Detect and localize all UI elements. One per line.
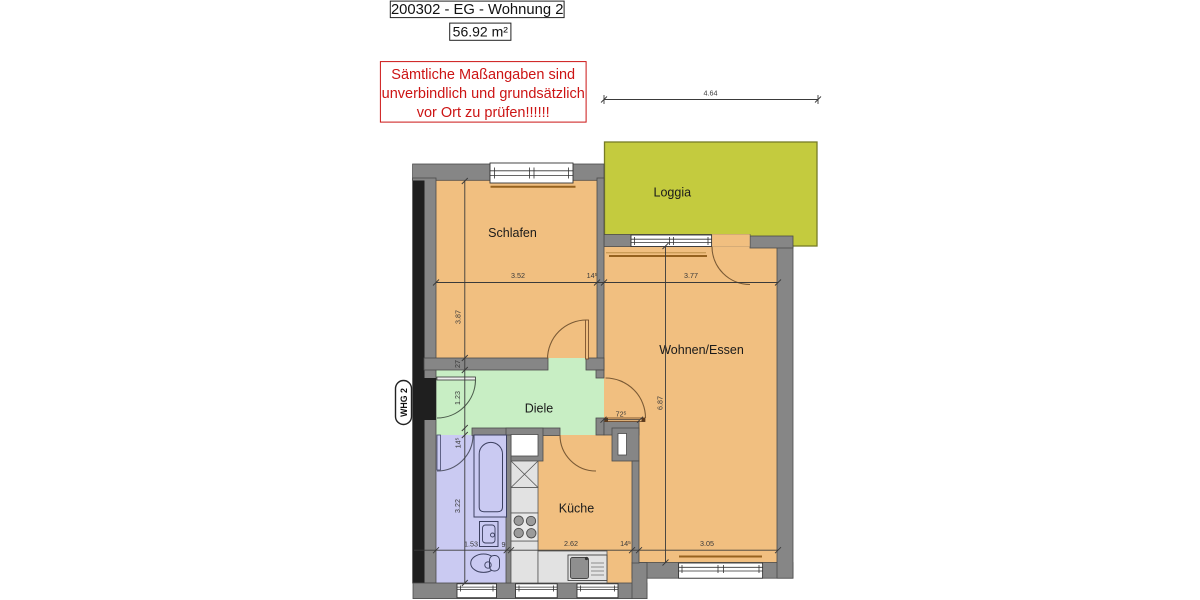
svg-text:unverbindlich und grundsätzlic: unverbindlich und grundsätzlich [382,86,585,102]
svg-text:4.64: 4.64 [704,89,718,98]
svg-text:Loggia: Loggia [654,186,692,200]
svg-text:Schlafen: Schlafen [488,226,537,240]
svg-text:3.22: 3.22 [453,499,462,513]
svg-text:2.62: 2.62 [564,539,578,548]
svg-text:3.87: 3.87 [454,310,463,324]
svg-text:1.23: 1.23 [453,391,462,405]
svg-text:Küche: Küche [559,502,594,516]
svg-text:3.05: 3.05 [700,539,714,548]
svg-text:3.77: 3.77 [684,271,698,280]
svg-text:56.92 m²: 56.92 m² [453,23,509,39]
svg-text:27: 27 [453,360,462,368]
svg-text:Sämtliche Maßangaben sind: Sämtliche Maßangaben sind [391,67,575,83]
svg-text:3.52: 3.52 [511,271,525,280]
svg-text:vor Ort zu prüfen!!!!!!: vor Ort zu prüfen!!!!!! [417,105,550,121]
svg-text:200302 - EG - Wohnung 2: 200302 - EG - Wohnung 2 [391,2,563,18]
svg-text:Wohnen/Essen: Wohnen/Essen [659,343,744,357]
svg-text:Diele: Diele [525,402,554,416]
svg-text:9: 9 [502,540,506,549]
svg-text:1.53: 1.53 [464,540,478,549]
svg-text:WHG 2: WHG 2 [399,388,409,417]
svg-text:6.87: 6.87 [656,396,665,410]
